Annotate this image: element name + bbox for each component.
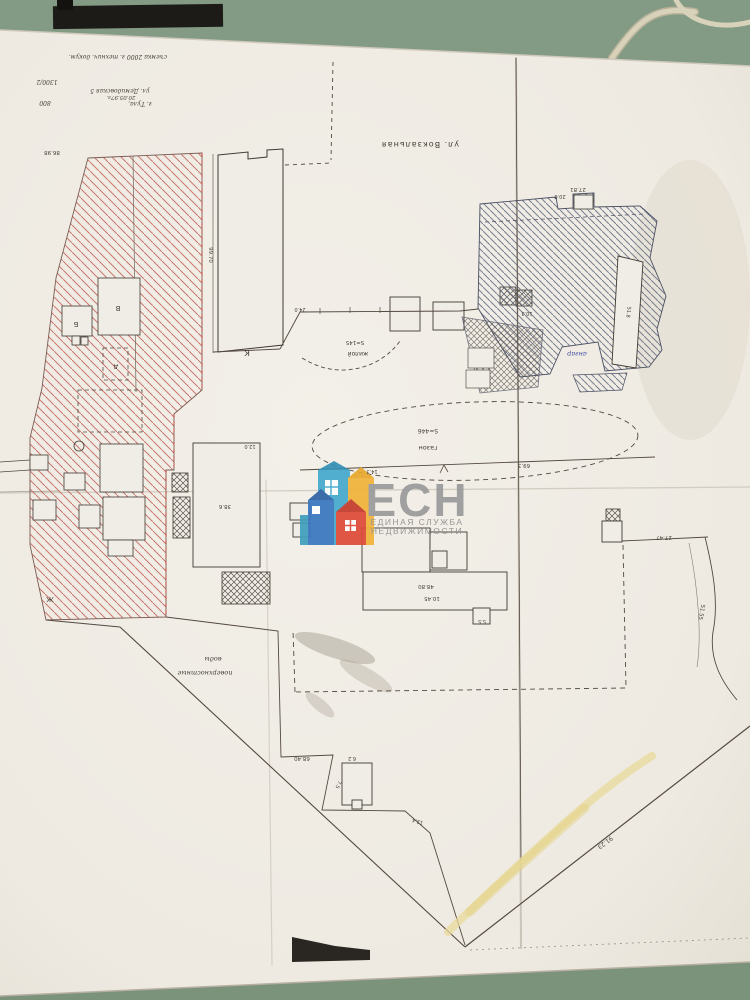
plan-label: 68.40 bbox=[294, 755, 310, 761]
plan-label: 1300/2 bbox=[36, 78, 57, 85]
plan-label: ангар bbox=[566, 350, 586, 358]
plan-label: 99.70 bbox=[207, 247, 213, 263]
plan-label: ул. Вокзальная bbox=[381, 140, 459, 149]
plan-label: К bbox=[244, 348, 250, 357]
plan-label: г. Тула, bbox=[128, 100, 152, 107]
plan-label: 20.05.97г. bbox=[106, 94, 136, 100]
plan-label: 800 bbox=[39, 99, 51, 106]
plan-label: съемка 2000 г. технич. докум. bbox=[69, 53, 167, 60]
plan-label: жилой bbox=[348, 350, 369, 357]
building-k bbox=[213, 149, 283, 353]
plan-label: 24.0 bbox=[294, 306, 305, 312]
plan-label: Ж bbox=[46, 595, 54, 603]
plan-label: 12.0 bbox=[244, 443, 255, 449]
plan-label: 14.3 bbox=[366, 468, 377, 474]
plan-label: 48.80 bbox=[418, 583, 434, 589]
plan-label: воды bbox=[204, 655, 221, 663]
plan-label: 10.3 bbox=[521, 310, 532, 316]
plan-label: 69.3 bbox=[517, 462, 530, 468]
plan-label: д bbox=[113, 363, 118, 371]
plan-label: 51.8 bbox=[624, 306, 631, 318]
plan-label: газон bbox=[418, 444, 437, 452]
site-plan-photo: ЕСН ЕДИНАЯ СЛУЖБА НЕДВИЖИМОСТИ съемка 20… bbox=[0, 0, 750, 1000]
plan-label: 20.0 bbox=[554, 193, 565, 199]
gray-hatch-area bbox=[462, 317, 543, 393]
plan-label: 27.81 bbox=[570, 186, 586, 192]
plan-label: 5.5 bbox=[478, 618, 486, 624]
plan-label: Б bbox=[73, 320, 78, 328]
plan-label: 27.47 bbox=[656, 534, 672, 540]
plan-label: 86.98 bbox=[44, 149, 60, 155]
plan-label: 6.2 bbox=[348, 755, 356, 761]
plan-label: 38.6 bbox=[218, 503, 231, 509]
plan-label: ул. Демидовская 5 bbox=[90, 87, 151, 94]
plan-label: В bbox=[115, 304, 120, 312]
plan-label: 10.45 bbox=[424, 595, 440, 601]
esn-subtitle-2: НЕДВИЖИМОСТИ bbox=[371, 526, 463, 536]
plan-label: поверхностные bbox=[177, 669, 232, 677]
plan-label: S=145 bbox=[345, 339, 364, 345]
screenshot-root: ЕСН ЕДИНАЯ СЛУЖБА НЕДВИЖИМОСТИ съемка 20… bbox=[0, 0, 750, 1000]
plan-label: S=446 bbox=[418, 427, 438, 434]
watermark: ЕСН ЕДИНАЯ СЛУЖБА НЕДВИЖИМОСТИ bbox=[300, 461, 469, 545]
